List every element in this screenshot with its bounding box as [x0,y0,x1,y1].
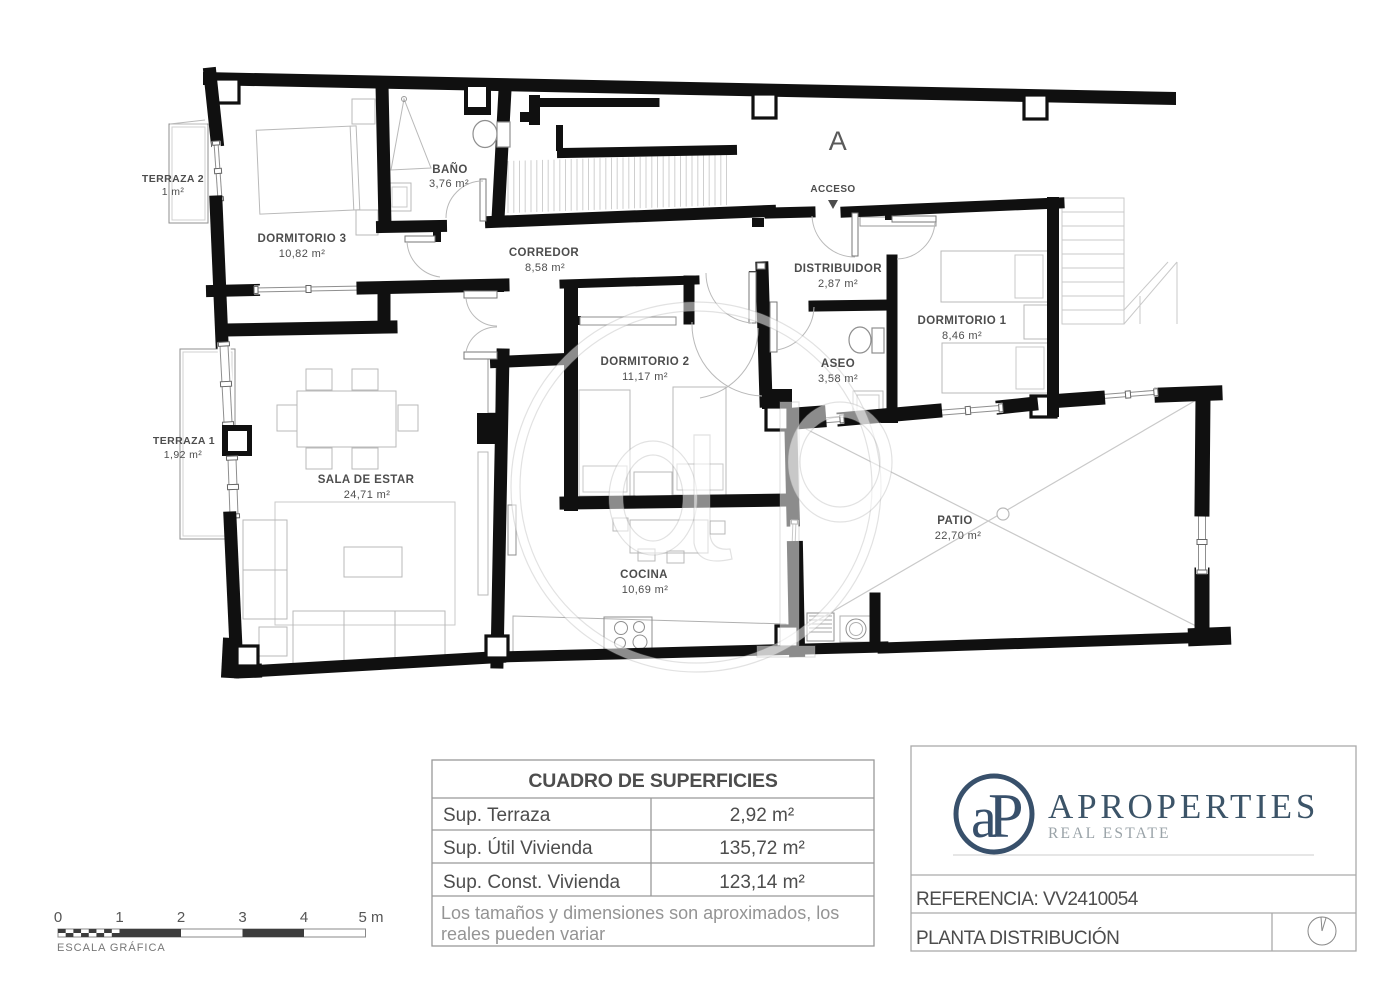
svg-text:CUADRO DE SUPERFICIES: CUADRO DE SUPERFICIES [528,770,778,792]
svg-text:ASEO: ASEO [821,358,855,370]
svg-text:0: 0 [54,909,62,926]
svg-text:TERRAZA 2: TERRAZA 2 [142,173,204,185]
svg-text:135,72 m²: 135,72 m² [719,838,805,859]
svg-text:Sup. Terraza: Sup. Terraza [443,805,551,826]
svg-text:DORMITORIO 1: DORMITORIO 1 [918,315,1007,327]
svg-text:4: 4 [300,909,308,926]
svg-text:P: P [988,780,1024,851]
svg-text:ACCESO: ACCESO [810,184,855,195]
svg-text:Sup. Útil Vivienda: Sup. Útil Vivienda [443,837,593,859]
svg-text:PLANTA DISTRIBUCIÓN: PLANTA DISTRIBUCIÓN [916,927,1119,949]
svg-text:1,92 m²: 1,92 m² [164,449,202,461]
svg-text:2,92 m²: 2,92 m² [730,805,794,826]
svg-text:PATIO: PATIO [937,515,972,527]
svg-text:8,46 m²: 8,46 m² [942,330,982,342]
svg-text:BAÑO: BAÑO [432,163,467,176]
svg-text:ESCALA GRÁFICA: ESCALA GRÁFICA [57,941,166,954]
svg-text:DISTRIBUIDOR: DISTRIBUIDOR [794,263,882,275]
svg-text:APROPERTIES: APROPERTIES [1048,787,1319,826]
svg-text:Los tamaños y dimensiones son: Los tamaños y dimensiones son aproximado… [441,903,839,923]
svg-text:22,70 m²: 22,70 m² [935,530,982,542]
svg-text:reales pueden variar: reales pueden variar [441,924,605,944]
svg-text:TERRAZA 1: TERRAZA 1 [153,435,215,447]
svg-text:CORREDOR: CORREDOR [509,247,580,259]
svg-text:2: 2 [177,909,185,926]
svg-text:1 m²: 1 m² [162,186,185,198]
svg-text:5 m: 5 m [358,909,383,926]
svg-text:3: 3 [238,909,246,926]
svg-text:8,58 m²: 8,58 m² [525,262,565,274]
svg-text:1: 1 [115,909,123,926]
svg-text:Sup. Const. Vivienda: Sup. Const. Vivienda [443,872,621,893]
svg-text:A: A [829,126,847,156]
svg-text:24,71 m²: 24,71 m² [344,489,391,501]
svg-text:2,87 m²: 2,87 m² [818,278,858,290]
svg-text:REFERENCIA: VV2410054: REFERENCIA: VV2410054 [916,889,1139,910]
svg-text:REAL ESTATE: REAL ESTATE [1048,825,1171,842]
svg-text:SALA DE ESTAR: SALA DE ESTAR [318,474,415,486]
svg-text:11,17 m²: 11,17 m² [622,371,668,383]
svg-text:10,69 m²: 10,69 m² [622,584,669,596]
svg-text:3,58 m²: 3,58 m² [818,373,858,385]
svg-text:DORMITORIO 3: DORMITORIO 3 [258,233,347,245]
svg-text:COCINA: COCINA [620,569,668,581]
svg-text:123,14 m²: 123,14 m² [719,872,805,893]
svg-text:DORMITORIO 2: DORMITORIO 2 [601,356,690,368]
svg-text:10,82 m²: 10,82 m² [279,248,326,260]
svg-text:3,76 m²: 3,76 m² [429,178,469,190]
